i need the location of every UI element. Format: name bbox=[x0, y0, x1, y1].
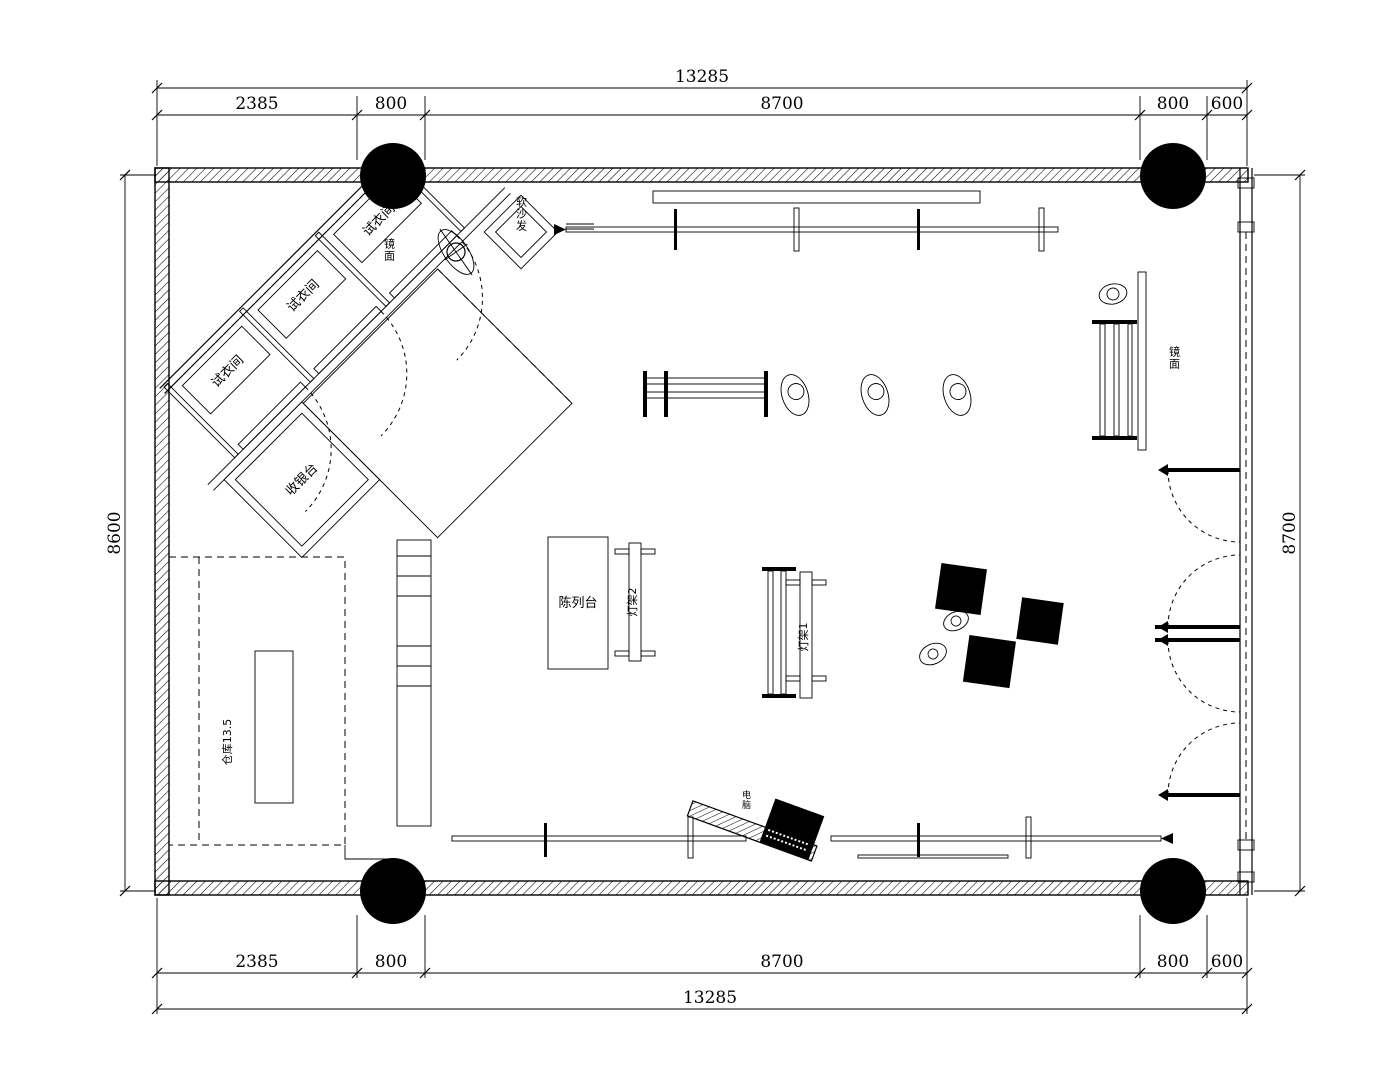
dim-top-seg-3: 8700 bbox=[760, 94, 803, 114]
top-hang-rail bbox=[554, 208, 1058, 251]
left-wall bbox=[155, 168, 169, 895]
dimension-left: 8600 bbox=[105, 170, 156, 896]
dim-top-seg-2: 800 bbox=[375, 94, 407, 114]
cash-desk: 电脑 bbox=[687, 789, 1008, 861]
mirror-1-label: 镜面 bbox=[383, 237, 396, 262]
dim-top-seg-4: 800 bbox=[1157, 94, 1189, 114]
display-cube bbox=[963, 635, 1016, 688]
dim-left: 8600 bbox=[105, 511, 125, 554]
display-table: 陈列台 bbox=[548, 537, 608, 669]
light-rack-2: 灯架2 bbox=[615, 543, 655, 661]
rail-end-arrow-icon bbox=[554, 224, 566, 235]
column bbox=[360, 858, 426, 924]
fitting-room-door bbox=[238, 382, 305, 449]
fitting-room-door bbox=[390, 231, 457, 298]
warehouse-shelf bbox=[255, 651, 293, 803]
computer-label: 电脑 bbox=[740, 789, 751, 810]
display-platform bbox=[303, 269, 572, 538]
floor-plan-canvas: 13285 2385 800 8700 800 600 2385 800 870… bbox=[0, 0, 1384, 1076]
mirror-2-label: 镜面 bbox=[1168, 345, 1181, 370]
dim-bottom-seg-4: 800 bbox=[1157, 952, 1189, 972]
door-hinge-icon bbox=[1158, 634, 1168, 646]
display-cube bbox=[1016, 597, 1063, 644]
column bbox=[1140, 858, 1206, 924]
mannequin-row bbox=[776, 371, 976, 419]
dim-bottom-seg-5: 600 bbox=[1211, 952, 1243, 972]
door-hinge-icon bbox=[1158, 789, 1168, 801]
mannequin-icon bbox=[428, 221, 483, 283]
rail-end-arrow-icon bbox=[1161, 833, 1173, 844]
dim-top-seg-5: 600 bbox=[1211, 94, 1243, 114]
light-rack-1: 灯架1 bbox=[762, 567, 826, 698]
dim-bottom-seg-2: 800 bbox=[375, 952, 407, 972]
cashier-label: 收银台 bbox=[283, 461, 321, 499]
fitting-room-1-label: 试衣间 bbox=[208, 352, 247, 391]
column bbox=[360, 143, 426, 209]
bottom-hang-rail-right bbox=[831, 817, 1173, 858]
top-wall bbox=[155, 168, 1248, 182]
dim-right: 8700 bbox=[1280, 511, 1300, 554]
right-clothes-rack: 镜面 bbox=[1092, 272, 1181, 450]
door-hinge-icon bbox=[1158, 621, 1168, 633]
storefront-glazing bbox=[1238, 168, 1254, 895]
dim-bottom-seg-1: 2385 bbox=[235, 952, 278, 972]
display-cube bbox=[935, 563, 987, 615]
dimension-top: 13285 2385 800 8700 800 600 bbox=[152, 67, 1252, 166]
mid-clothes-rack bbox=[643, 371, 768, 417]
exterior-walls bbox=[155, 168, 1248, 895]
dim-top-overall: 13285 bbox=[675, 67, 729, 87]
light-rack-1-label: 灯架1 bbox=[797, 623, 810, 652]
bottom-wall bbox=[155, 881, 1248, 895]
fitting-room-door bbox=[314, 306, 381, 373]
entrance-doors bbox=[1155, 464, 1240, 801]
stool bbox=[916, 639, 950, 669]
display-table-label: 陈列台 bbox=[558, 595, 597, 611]
dimension-bottom: 2385 800 8700 800 600 13285 bbox=[152, 898, 1252, 1014]
sofa-label: 软沙发 bbox=[515, 195, 528, 232]
dimension-right: 8700 bbox=[1254, 170, 1305, 896]
display-cubes bbox=[916, 563, 1064, 688]
dim-bottom-seg-3: 8700 bbox=[760, 952, 803, 972]
wall-shelf bbox=[653, 191, 980, 203]
ladder-shelf bbox=[397, 540, 431, 826]
fitting-room-2-label: 试衣间 bbox=[284, 276, 323, 315]
floor-plan-page: 13285 2385 800 8700 800 600 2385 800 870… bbox=[0, 0, 1384, 1076]
dim-top-seg-1: 2385 bbox=[235, 94, 278, 114]
column bbox=[1140, 143, 1206, 209]
low-partition bbox=[858, 855, 1008, 858]
bottom-hang-rail-left bbox=[452, 817, 746, 858]
fitting-room-3-label: 试衣间 bbox=[359, 201, 398, 240]
door-hinge-icon bbox=[1158, 464, 1168, 476]
mirror-board bbox=[1138, 272, 1146, 450]
warehouse: 仓库13.5 bbox=[169, 557, 391, 881]
light-rack-2-label: 灯架2 bbox=[626, 588, 639, 617]
warehouse-label: 仓库13.5 bbox=[220, 719, 234, 766]
dim-bottom-overall: 13285 bbox=[683, 988, 737, 1008]
